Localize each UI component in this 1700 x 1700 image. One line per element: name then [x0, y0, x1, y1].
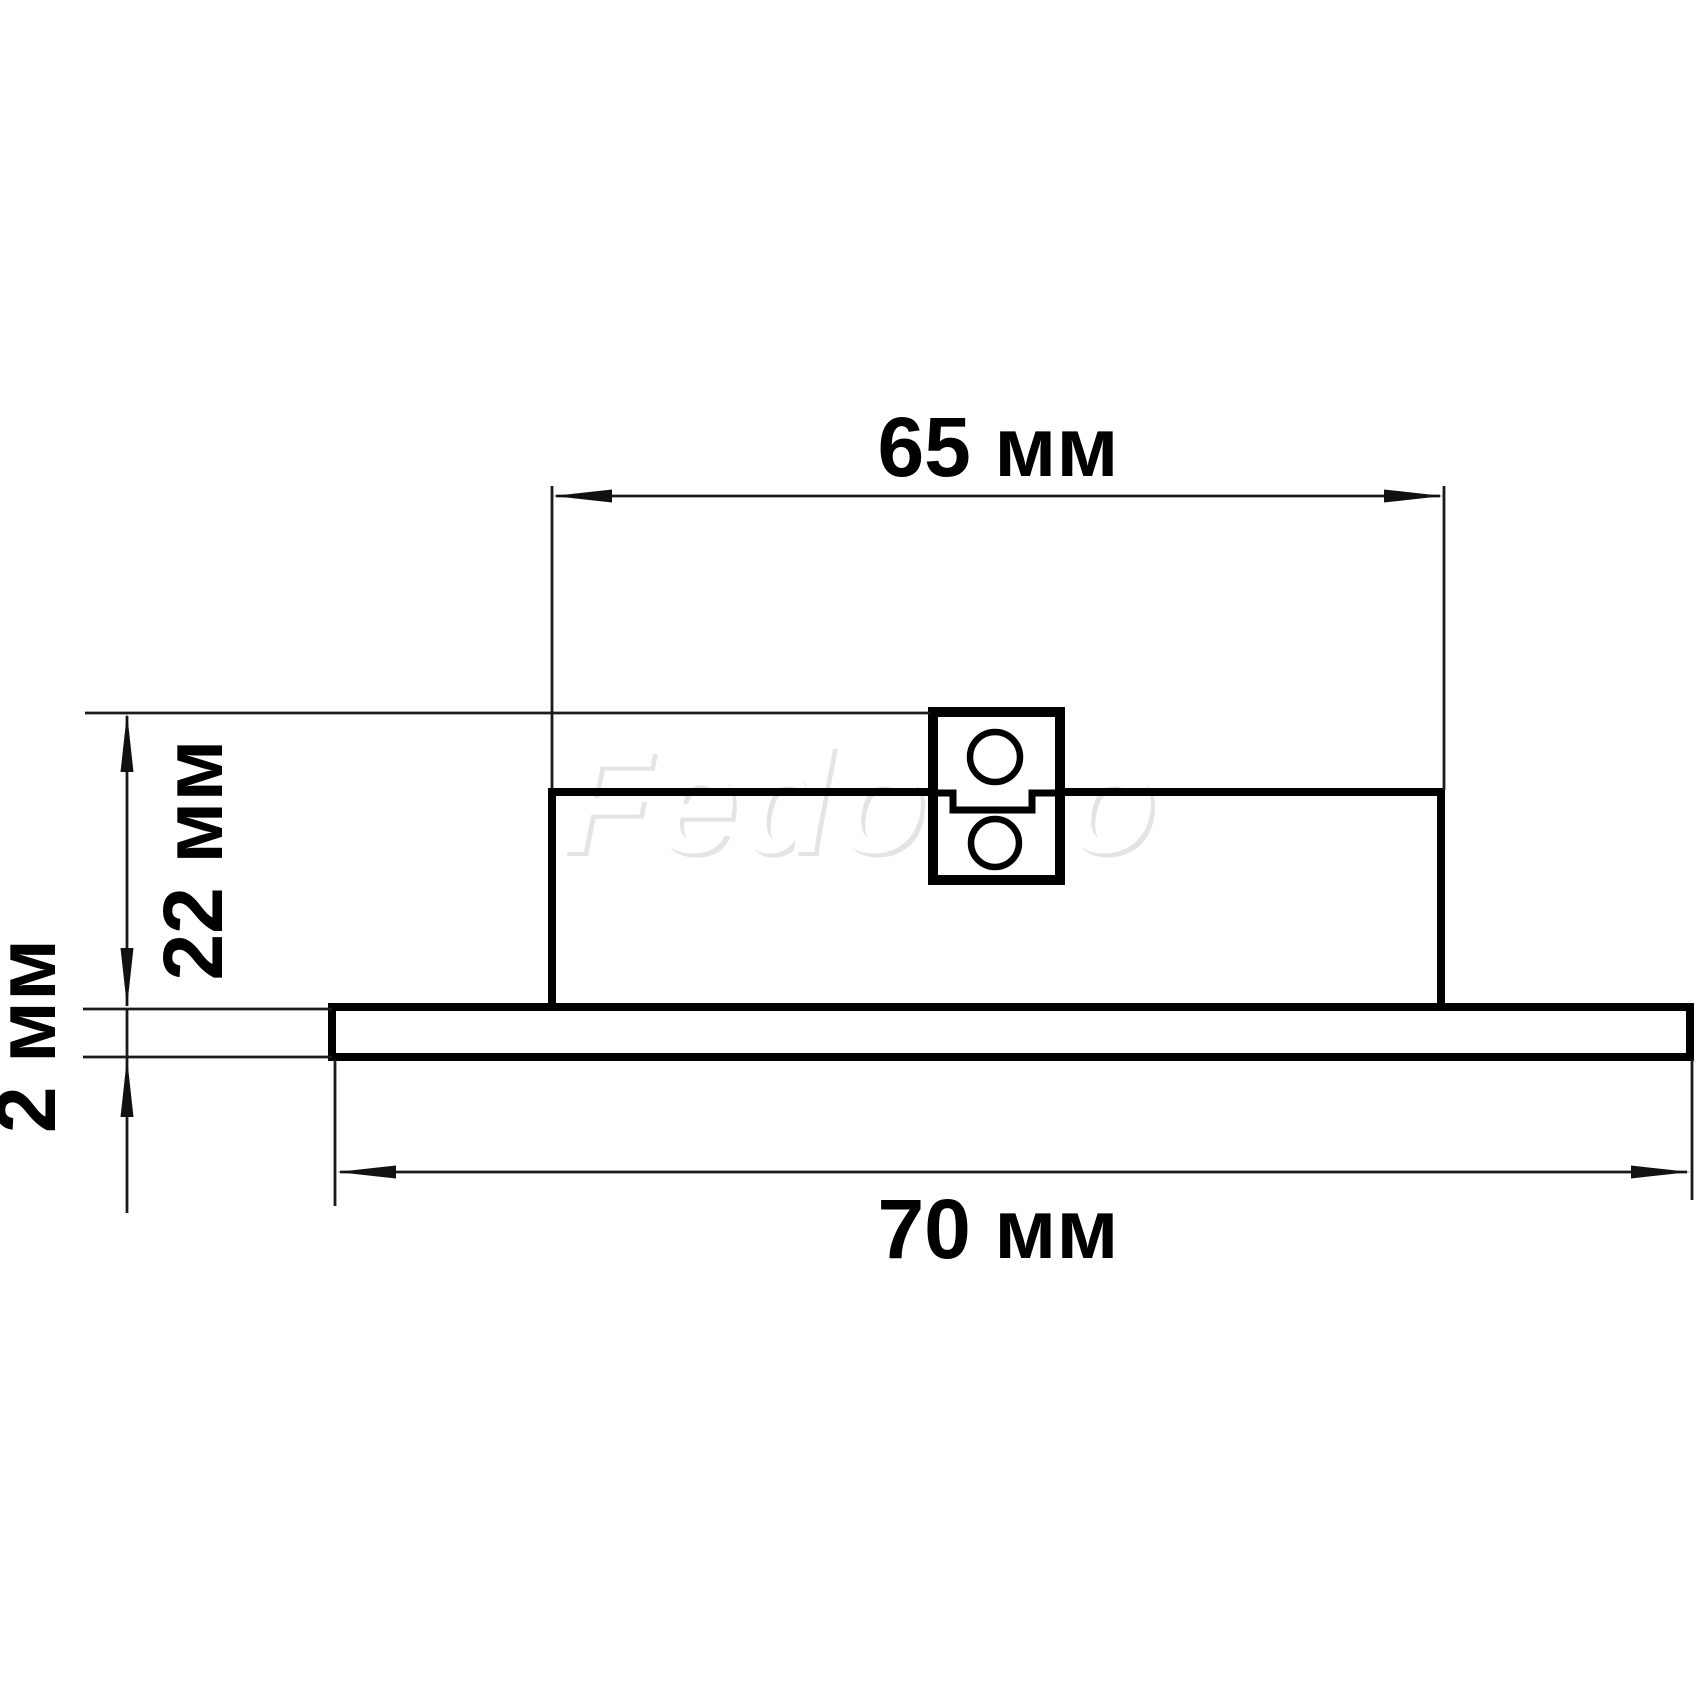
- watermark: Fedomo Fedomo: [560, 719, 1164, 888]
- arrowhead-right: [1384, 490, 1443, 503]
- dim-plate-thickness-label: 2 мм: [0, 939, 73, 1133]
- part-outline: [332, 712, 1690, 1057]
- drawing-canvas: Fedomo Fedomo 65 мм: [0, 0, 1700, 1700]
- arrowhead-right: [1631, 1166, 1690, 1179]
- dim-overall-height-label: 22 мм: [146, 739, 240, 980]
- dim-plate-width-label: 70 мм: [877, 1182, 1118, 1276]
- dim-body-width-label: 65 мм: [877, 400, 1118, 494]
- arrowhead-down: [121, 948, 134, 1007]
- technical-drawing: Fedomo Fedomo 65 мм: [0, 0, 1700, 1700]
- arrowhead-left: [553, 490, 612, 503]
- watermark-text: Fedomo: [560, 719, 1160, 884]
- dim-plate-width: 70 мм: [335, 1059, 1692, 1276]
- arrowhead-up: [121, 1058, 134, 1117]
- arrowhead-left: [337, 1166, 396, 1179]
- base-plate-outline: [332, 1007, 1690, 1057]
- arrowhead-up: [121, 713, 134, 772]
